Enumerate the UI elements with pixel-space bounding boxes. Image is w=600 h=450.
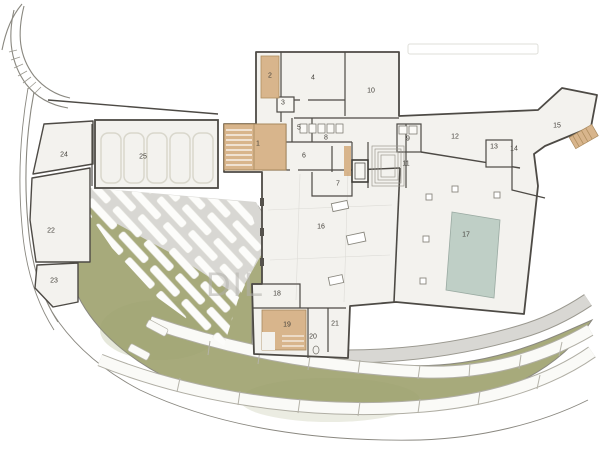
room-label-13: 13 — [490, 144, 498, 151]
room-label-11: 11 — [402, 161, 409, 168]
room-label-14: 14 — [510, 146, 518, 153]
room-label-10: 10 — [367, 88, 375, 95]
room-label-1: 1 — [256, 141, 260, 148]
room-label-6: 6 — [302, 153, 306, 160]
room-label-12: 12 — [451, 134, 459, 141]
room-label-8: 8 — [324, 135, 328, 142]
room-label-4: 4 — [311, 75, 315, 82]
watermark: DIL — [206, 266, 265, 305]
room-label-20: 20 — [309, 334, 317, 341]
room-label-3: 3 — [281, 100, 285, 107]
room-label-17: 17 — [462, 232, 470, 239]
room-label-5: 5 — [297, 125, 301, 132]
garage — [92, 120, 218, 188]
room-label-15: 15 — [553, 123, 561, 130]
floor-plan: DIL 123456789101112131415161718192021222… — [0, 0, 600, 450]
room-label-9: 9 — [406, 136, 410, 143]
room-label-7: 7 — [336, 181, 340, 188]
room-label-18: 18 — [273, 291, 281, 298]
room-label-24: 24 — [60, 152, 68, 159]
room-label-19: 19 — [283, 322, 291, 329]
room-label-22: 22 — [47, 228, 55, 235]
room-label-16: 16 — [317, 224, 325, 231]
room-label-21: 21 — [331, 321, 339, 328]
plan-drawing — [0, 0, 600, 450]
room-label-23: 23 — [50, 278, 58, 285]
room-label-2: 2 — [268, 73, 272, 80]
building — [224, 44, 598, 358]
room-label-25: 25 — [139, 154, 147, 161]
